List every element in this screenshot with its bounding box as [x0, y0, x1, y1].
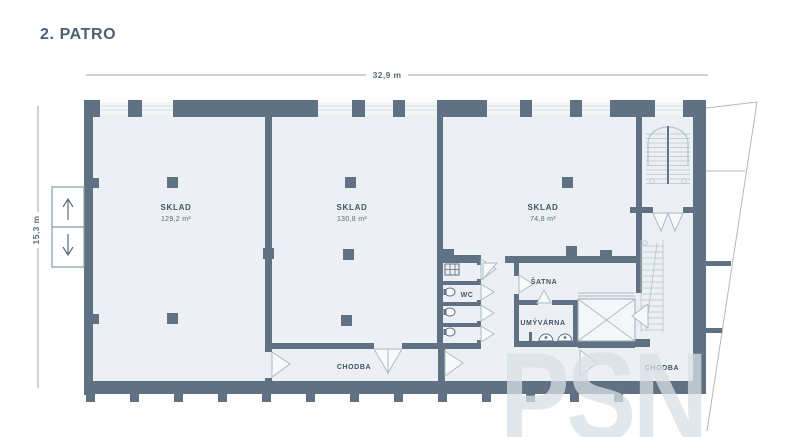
neighbor-outline [706, 102, 757, 431]
room-label-sklad-right: SKLAD [527, 203, 558, 212]
room-area-sklad-left: 129,2 m² [161, 216, 191, 223]
neighbor-line [706, 102, 757, 108]
floor-plan-page: 2. PATRO 32,9 m 15,3 m [0, 0, 800, 437]
neighbor-boundary-line [707, 102, 757, 431]
room-label-satna: ŠATNA [531, 277, 558, 286]
room-area-sklad-right: 74,8 m² [530, 216, 556, 223]
top-wall-pillars [84, 100, 706, 117]
floor-plan-drawing: 32,9 m 15,3 m [0, 0, 800, 437]
dimension-height-label: 15,3 m [31, 216, 41, 245]
dimension-width-label: 32,9 m [373, 70, 402, 80]
toilet-tank [444, 289, 447, 295]
watermark-logo: PSN [500, 328, 705, 437]
room-label-sklad-left: SKLAD [160, 203, 191, 212]
dimension-top: 32,9 m [86, 70, 708, 80]
toilet-tank [444, 309, 447, 315]
elevator-shafts [52, 187, 84, 267]
toilet-tank [444, 329, 447, 335]
dimension-left: 15,3 m [31, 106, 41, 388]
room-area-sklad-middle: 130,8 m² [337, 216, 367, 223]
room-label-chodba-center: CHODBA [337, 364, 371, 371]
room-label-umyvarna: UMÝVÁRNA [520, 318, 565, 327]
room-label-wc: WC [461, 292, 474, 299]
room-label-sklad-middle: SKLAD [336, 203, 367, 212]
